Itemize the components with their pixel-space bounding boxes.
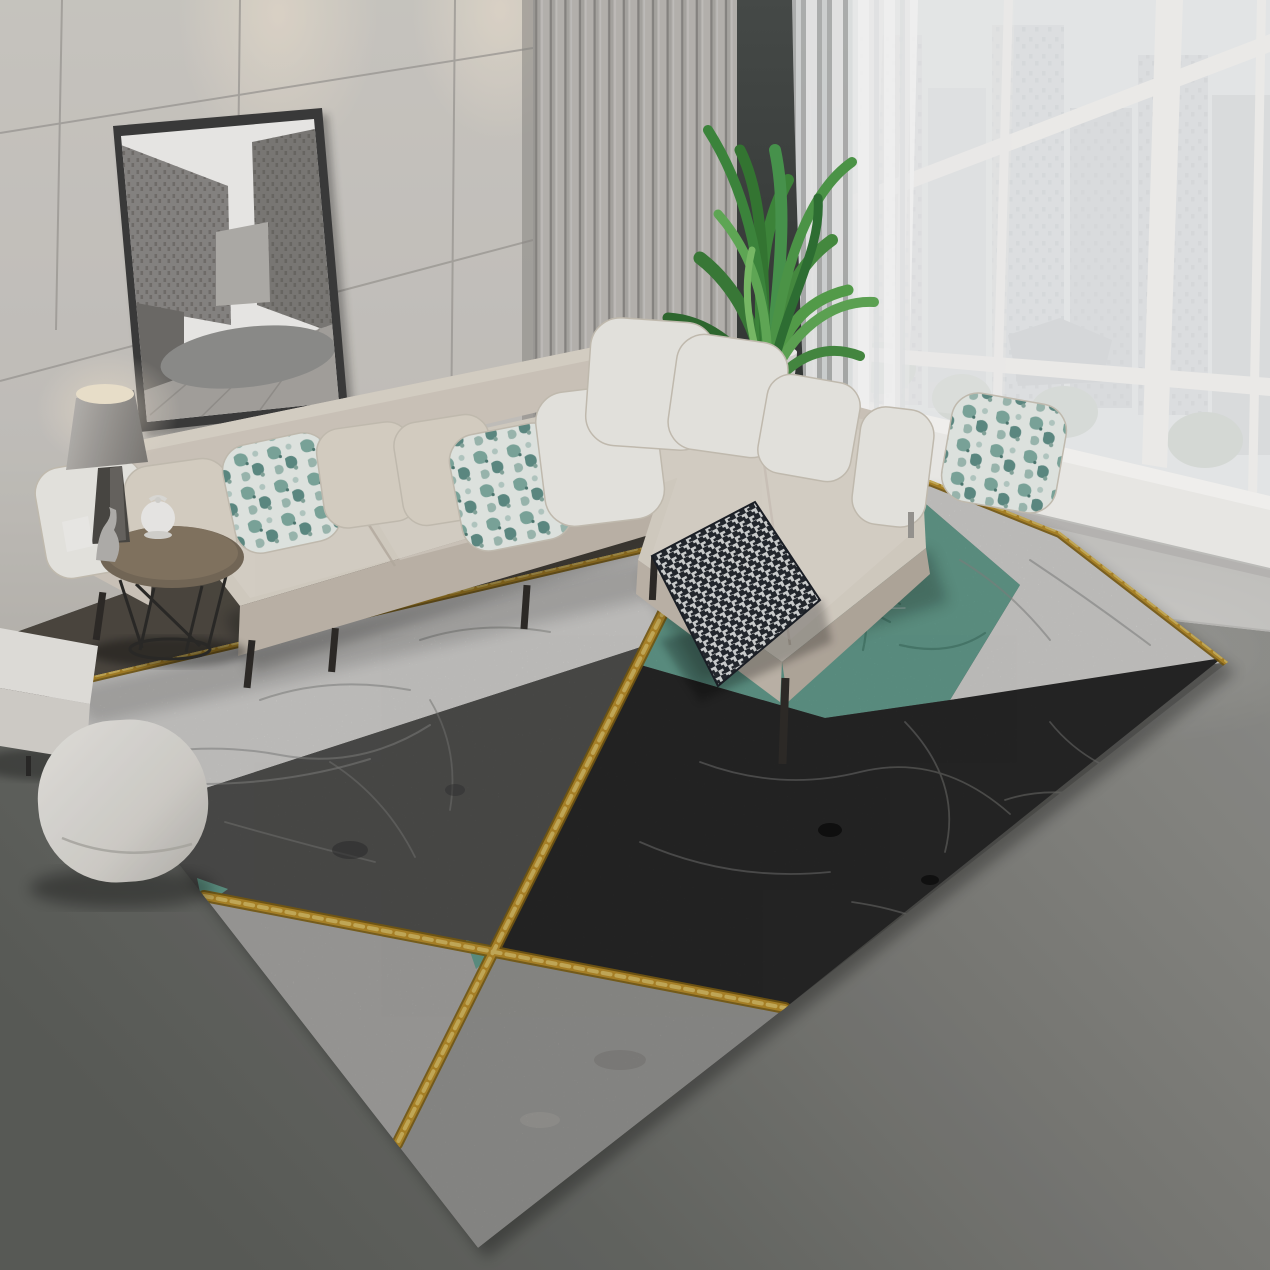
living-room-product-photo [0, 0, 1270, 1270]
vignette [0, 0, 1270, 1270]
